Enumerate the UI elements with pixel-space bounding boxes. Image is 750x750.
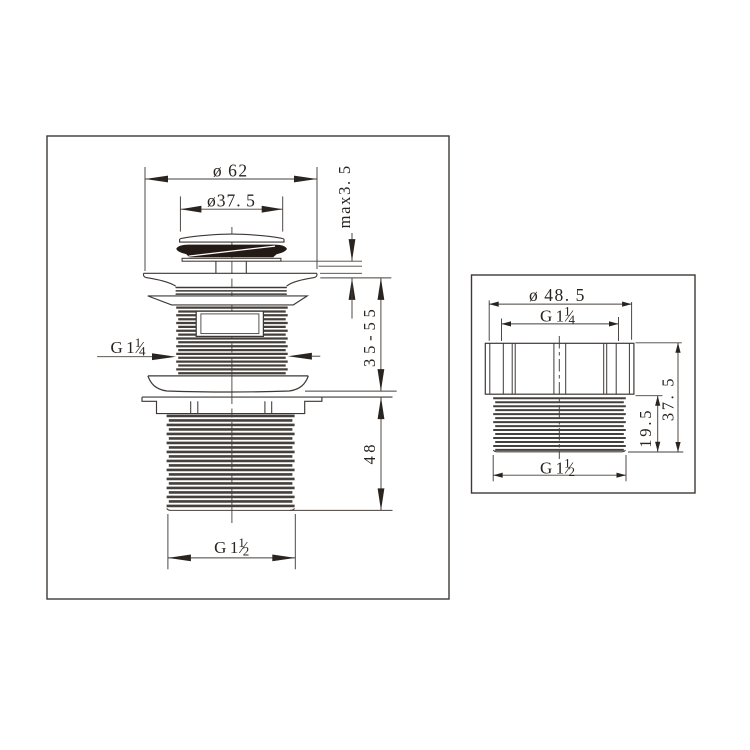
svg-text:ø 48. 5: ø 48. 5 [529, 285, 586, 305]
svg-text:G 11⁄4: G 11⁄4 [111, 335, 147, 359]
svg-text:ø 62: ø 62 [213, 161, 249, 181]
svg-text:19.5: 19.5 [636, 408, 655, 448]
svg-text:48: 48 [360, 441, 379, 465]
svg-text:max3. 5: max3. 5 [335, 164, 354, 228]
svg-text:G 11⁄2: G 11⁄2 [214, 535, 249, 559]
svg-text:37. 5: 37. 5 [659, 376, 678, 421]
svg-text:G 11⁄4: G 11⁄4 [540, 304, 576, 328]
svg-text:ø37. 5: ø37. 5 [207, 191, 256, 211]
svg-text:G 11⁄2: G 11⁄2 [540, 456, 575, 480]
svg-text:35-55: 35-55 [360, 304, 379, 367]
